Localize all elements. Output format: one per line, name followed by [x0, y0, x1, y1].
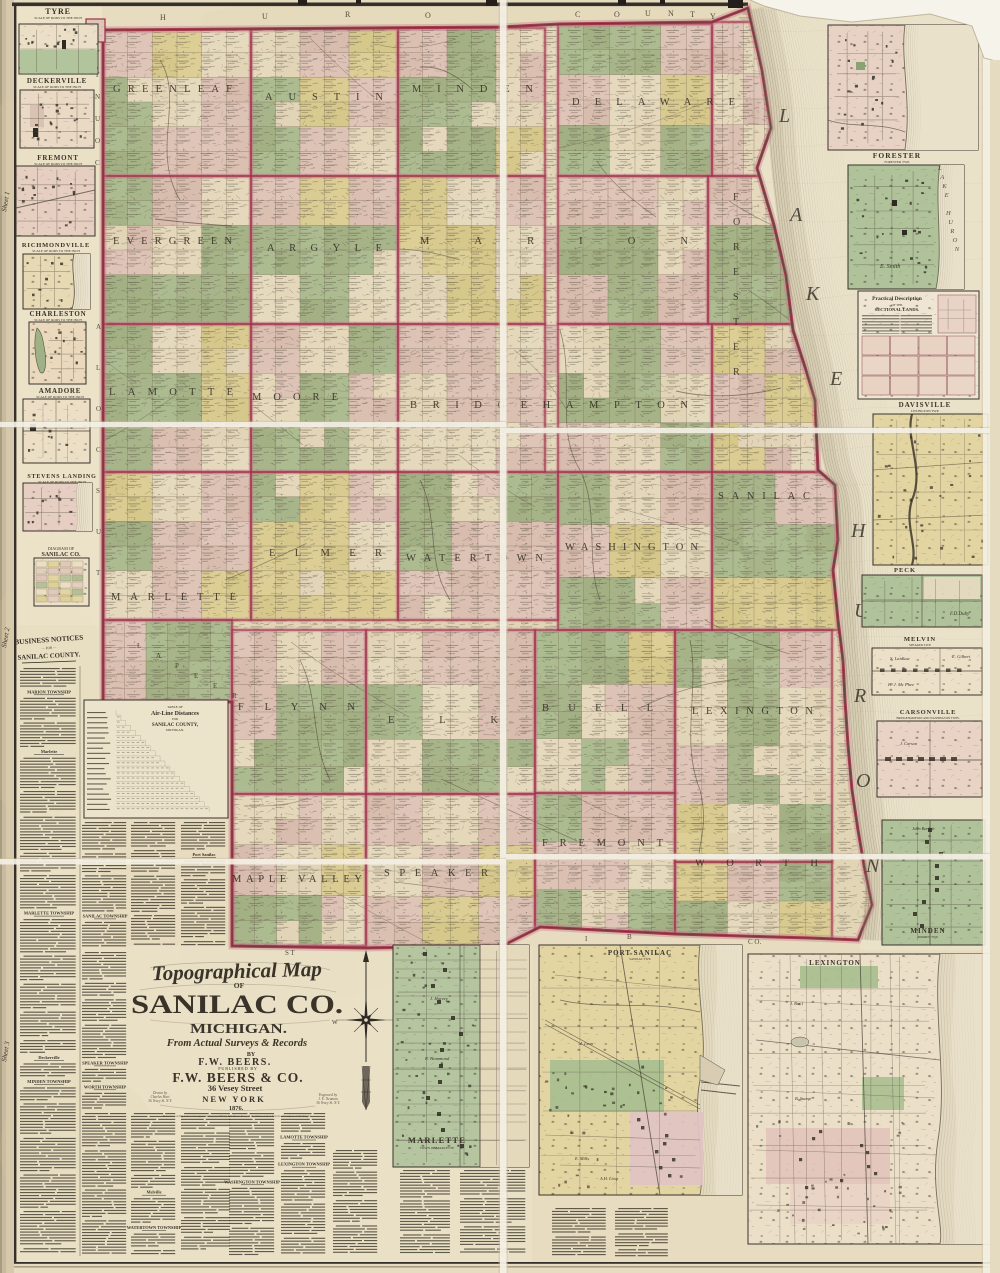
svg-text:H. J. Mc Phee: H. J. Mc Phee [887, 682, 914, 687]
svg-text:MAPLE VALLEY: MAPLE VALLEY [232, 874, 364, 885]
svg-text:S: S [96, 487, 100, 495]
svg-text:LAMOTTE: LAMOTTE [109, 387, 235, 398]
svg-text:P: P [175, 662, 179, 670]
svg-text:L: L [937, 165, 942, 172]
svg-text:1876.: 1876. [229, 1105, 244, 1112]
svg-text:SCALE OF RODS TO THE INCH: SCALE OF RODS TO THE INCH [36, 395, 84, 399]
svg-text:O: O [856, 770, 870, 792]
svg-text:U: U [645, 9, 651, 18]
svg-text:MINDEN TWP.: MINDEN TWP. [918, 935, 939, 939]
svg-text:SPEAKER TWP.: SPEAKER TWP. [909, 643, 931, 647]
svg-text:E: E [829, 368, 842, 390]
svg-text:Deckerville: Deckerville [38, 1055, 59, 1060]
svg-text:F: F [733, 192, 739, 203]
svg-text:O: O [733, 217, 740, 228]
svg-text:O: O [614, 10, 620, 19]
svg-text:John Barlow: John Barlow [912, 826, 935, 831]
svg-text:R: R [733, 242, 740, 253]
svg-text:E: E [733, 267, 739, 278]
svg-text:S: S [733, 292, 739, 303]
svg-text:C: C [575, 10, 580, 19]
svg-text:E: E [194, 672, 198, 680]
svg-text:U: U [96, 528, 101, 536]
svg-text:FORESTER TWP.: FORESTER TWP. [884, 160, 910, 164]
svg-text:E: E [213, 682, 217, 690]
svg-text:WATERTOWN: WATERTOWN [406, 553, 545, 564]
svg-text:SANILAC TWP.: SANILAC TWP. [629, 957, 651, 961]
svg-text:O: O [425, 11, 431, 20]
svg-text:GREENLEAF: GREENLEAF [113, 84, 234, 95]
svg-text:K: K [941, 183, 947, 190]
svg-text:CHARLESTON: CHARLESTON [30, 310, 87, 318]
svg-text:J. Lean: J. Lean [580, 1041, 594, 1046]
svg-text:LEXINGTON: LEXINGTON [809, 959, 861, 967]
svg-text:SCALE OF RODS TO THE INCH: SCALE OF RODS TO THE INCH [33, 85, 81, 89]
svg-text:BRIDGEHAMPTON AND WASHINGTON T: BRIDGEHAMPTON AND WASHINGTON TWPS. [896, 716, 959, 720]
svg-text:R: R [733, 367, 740, 378]
svg-text:SCALE OF RODS TO THE INCH: SCALE OF RODS TO THE INCH [34, 162, 82, 166]
svg-text:T: T [96, 569, 101, 577]
svg-text:R. Hammond: R. Hammond [424, 1056, 450, 1061]
svg-text:SPEAKER TOWNSHIP: SPEAKER TOWNSHIP [82, 1060, 128, 1065]
svg-text:H: H [160, 13, 166, 22]
svg-text:SCALE OF RODS TO THE INCH: SCALE OF RODS TO THE INCH [34, 318, 82, 322]
svg-text:Port Sanilac: Port Sanilac [192, 852, 215, 857]
svg-text:TABLE OF: TABLE OF [167, 705, 183, 709]
svg-text:MARLETTE TOWNSHIP: MARLETTE TOWNSHIP [24, 911, 75, 916]
svg-text:T: T [733, 317, 739, 328]
svg-text:CARSONVILLE: CARSONVILLE [900, 709, 956, 716]
svg-text:TOWN OF MARLETTE: TOWN OF MARLETTE [420, 1146, 454, 1150]
svg-text:Melville: Melville [146, 1190, 161, 1195]
svg-text:E: E [733, 342, 739, 353]
svg-text:L: L [96, 364, 100, 372]
svg-text:LEXINGTON: LEXINGTON [692, 706, 815, 717]
svg-text:A: A [788, 204, 803, 226]
svg-text:WASHINGTON: WASHINGTON [565, 542, 700, 553]
svg-text:EVERGREEN: EVERGREEN [113, 236, 234, 247]
svg-text:E. Mills: E. Mills [574, 1156, 589, 1161]
svg-text:MELVIN: MELVIN [904, 636, 936, 643]
svg-text:LEXINGTON TOWNSHIP: LEXINGTON TOWNSHIP [278, 1162, 330, 1167]
svg-text:A: A [96, 323, 101, 331]
svg-text:B: B [627, 933, 632, 941]
svg-text:C: C [95, 159, 100, 167]
svg-text:A: A [939, 174, 944, 181]
svg-text:RICHMONDVILLE: RICHMONDVILLE [22, 242, 90, 249]
svg-text:DIAGRAM OF: DIAGRAM OF [48, 546, 75, 551]
svg-text:AMADORE: AMADORE [39, 387, 82, 395]
svg-text:SANILAC CO.: SANILAC CO. [41, 552, 81, 558]
svg-text:O: O [953, 237, 958, 244]
svg-text:FORESTER: FORESTER [873, 151, 921, 160]
svg-text:WATERTOWN TOWNSHIP: WATERTOWN TOWNSHIP [127, 1225, 182, 1230]
svg-text:PORT SANILAC: PORT SANILAC [608, 949, 672, 957]
svg-text:H: H [850, 520, 867, 542]
svg-text:K: K [805, 283, 821, 305]
svg-text:WASHINGTON TOWNSHIP: WASHINGTON TOWNSHIP [224, 1179, 280, 1184]
svg-text:WORTH TOWNSHIP: WORTH TOWNSHIP [84, 1084, 127, 1089]
svg-text:TYRE: TYRE [45, 7, 70, 16]
svg-text:From Actual Surveys & Records: From Actual Surveys & Records [166, 1038, 307, 1049]
svg-text:S. Laidlaw: S. Laidlaw [890, 656, 911, 661]
svg-text:N: N [954, 246, 960, 253]
svg-text:SANILAC CO.: SANILAC CO. [131, 990, 343, 1019]
svg-text:E. Gilbert: E. Gilbert [951, 654, 971, 659]
svg-text:A: A [156, 652, 161, 660]
svg-text:Y: Y [710, 12, 716, 21]
svg-text:36 Vesey St. N.Y.: 36 Vesey St. N.Y. [316, 1101, 340, 1105]
svg-text:OF: OF [234, 981, 245, 990]
svg-text:R: R [345, 10, 351, 19]
svg-text:L: L [137, 642, 141, 650]
svg-text:Practical Description: Practical Description [872, 296, 922, 302]
svg-text:SANILAC TOWNSHIP: SANILAC TOWNSHIP [83, 913, 128, 918]
svg-text:O: O [95, 137, 100, 145]
svg-text:H: H [945, 210, 951, 217]
svg-text:NEW YORK: NEW YORK [202, 1094, 265, 1104]
svg-text:Marlette: Marlette [41, 749, 57, 754]
svg-text:SCALE OF RODS TO THE INCH: SCALE OF RODS TO THE INCH [32, 249, 80, 253]
svg-text:DECKERVILLE: DECKERVILLE [27, 77, 87, 85]
svg-text:J. Harvey: J. Harvey [430, 996, 449, 1001]
svg-text:U: U [95, 115, 100, 123]
svg-text:S T: S T [285, 949, 296, 957]
svg-text:B. Stamp: B. Stamp [795, 1096, 812, 1101]
svg-text:E: E [944, 192, 949, 199]
svg-text:R: R [853, 685, 866, 707]
svg-text:DAVISVILLE: DAVISVILLE [899, 401, 952, 409]
svg-text:MINDEN TOWNSHIP: MINDEN TOWNSHIP [27, 1079, 71, 1084]
svg-text:LEXINGTON TWP.: LEXINGTON TWP. [911, 409, 939, 413]
svg-text:T: T [690, 10, 695, 19]
svg-text:N: N [668, 9, 674, 18]
svg-text:SECTIONAL LANDS.: SECTIONAL LANDS. [875, 307, 920, 312]
svg-text:C O.: C O. [748, 938, 761, 946]
svg-text:FREMONT: FREMONT [542, 838, 665, 849]
svg-text:SCALE OF RODS TO THE INCH: SCALE OF RODS TO THE INCH [34, 16, 82, 20]
svg-text:R: R [949, 228, 954, 235]
svg-text:36 Vesey St. N.Y.: 36 Vesey St. N.Y. [148, 1099, 172, 1103]
svg-text:FOR: FOR [172, 717, 179, 721]
svg-text:L: L [778, 105, 790, 127]
svg-text:LAMOTTE TOWNSHIP: LAMOTTE TOWNSHIP [280, 1135, 328, 1140]
svg-text:A.H. Loop: A.H. Loop [599, 1176, 619, 1181]
svg-text:N: N [95, 93, 100, 101]
svg-text:MINDEN: MINDEN [910, 927, 945, 935]
svg-text:U: U [262, 12, 268, 21]
svg-text:MICHIGAN.: MICHIGAN. [166, 728, 184, 732]
svg-text:O: O [96, 405, 101, 413]
svg-text:W: W [332, 1020, 338, 1026]
svg-text:36 Vesey Street: 36 Vesey Street [208, 1083, 263, 1093]
svg-text:MARLETTE: MARLETTE [408, 1135, 466, 1145]
svg-text:MARION TOWNSHIP: MARION TOWNSHIP [27, 689, 71, 694]
svg-text:PECK: PECK [894, 567, 916, 574]
svg-text:FREMONT: FREMONT [37, 154, 78, 162]
svg-text:J. Bar l: J. Bar l [790, 1001, 804, 1006]
svg-text:R: R [232, 692, 237, 700]
svg-text:C: C [96, 446, 101, 454]
svg-text:F.D.Duby: F.D.Duby [949, 612, 970, 617]
svg-text:E. Smith: E. Smith [879, 264, 900, 270]
svg-text:J. Carson: J. Carson [900, 741, 918, 746]
